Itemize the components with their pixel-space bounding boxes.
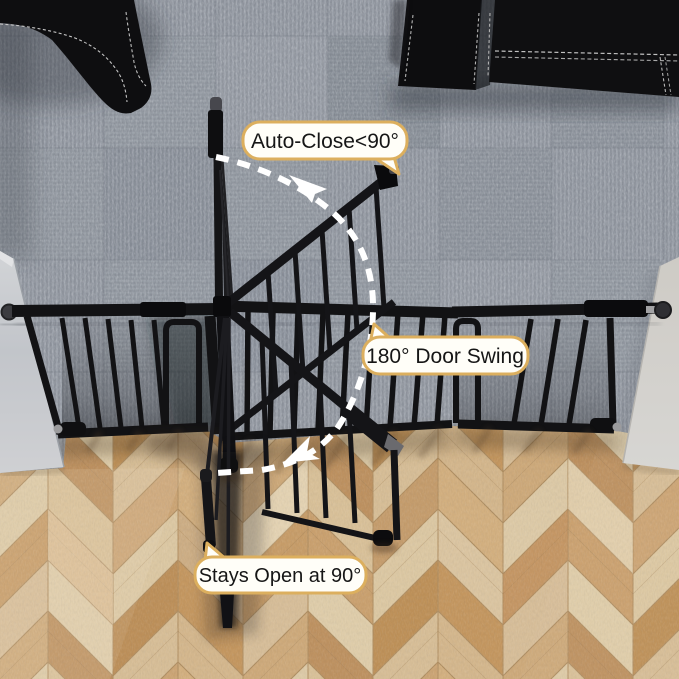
svg-text:Stays Open at 90°: Stays Open at 90° [199,565,362,587]
svg-text:Auto-Close<90°: Auto-Close<90° [251,130,399,153]
svg-text:180° Door Swing: 180° Door Swing [366,345,524,368]
